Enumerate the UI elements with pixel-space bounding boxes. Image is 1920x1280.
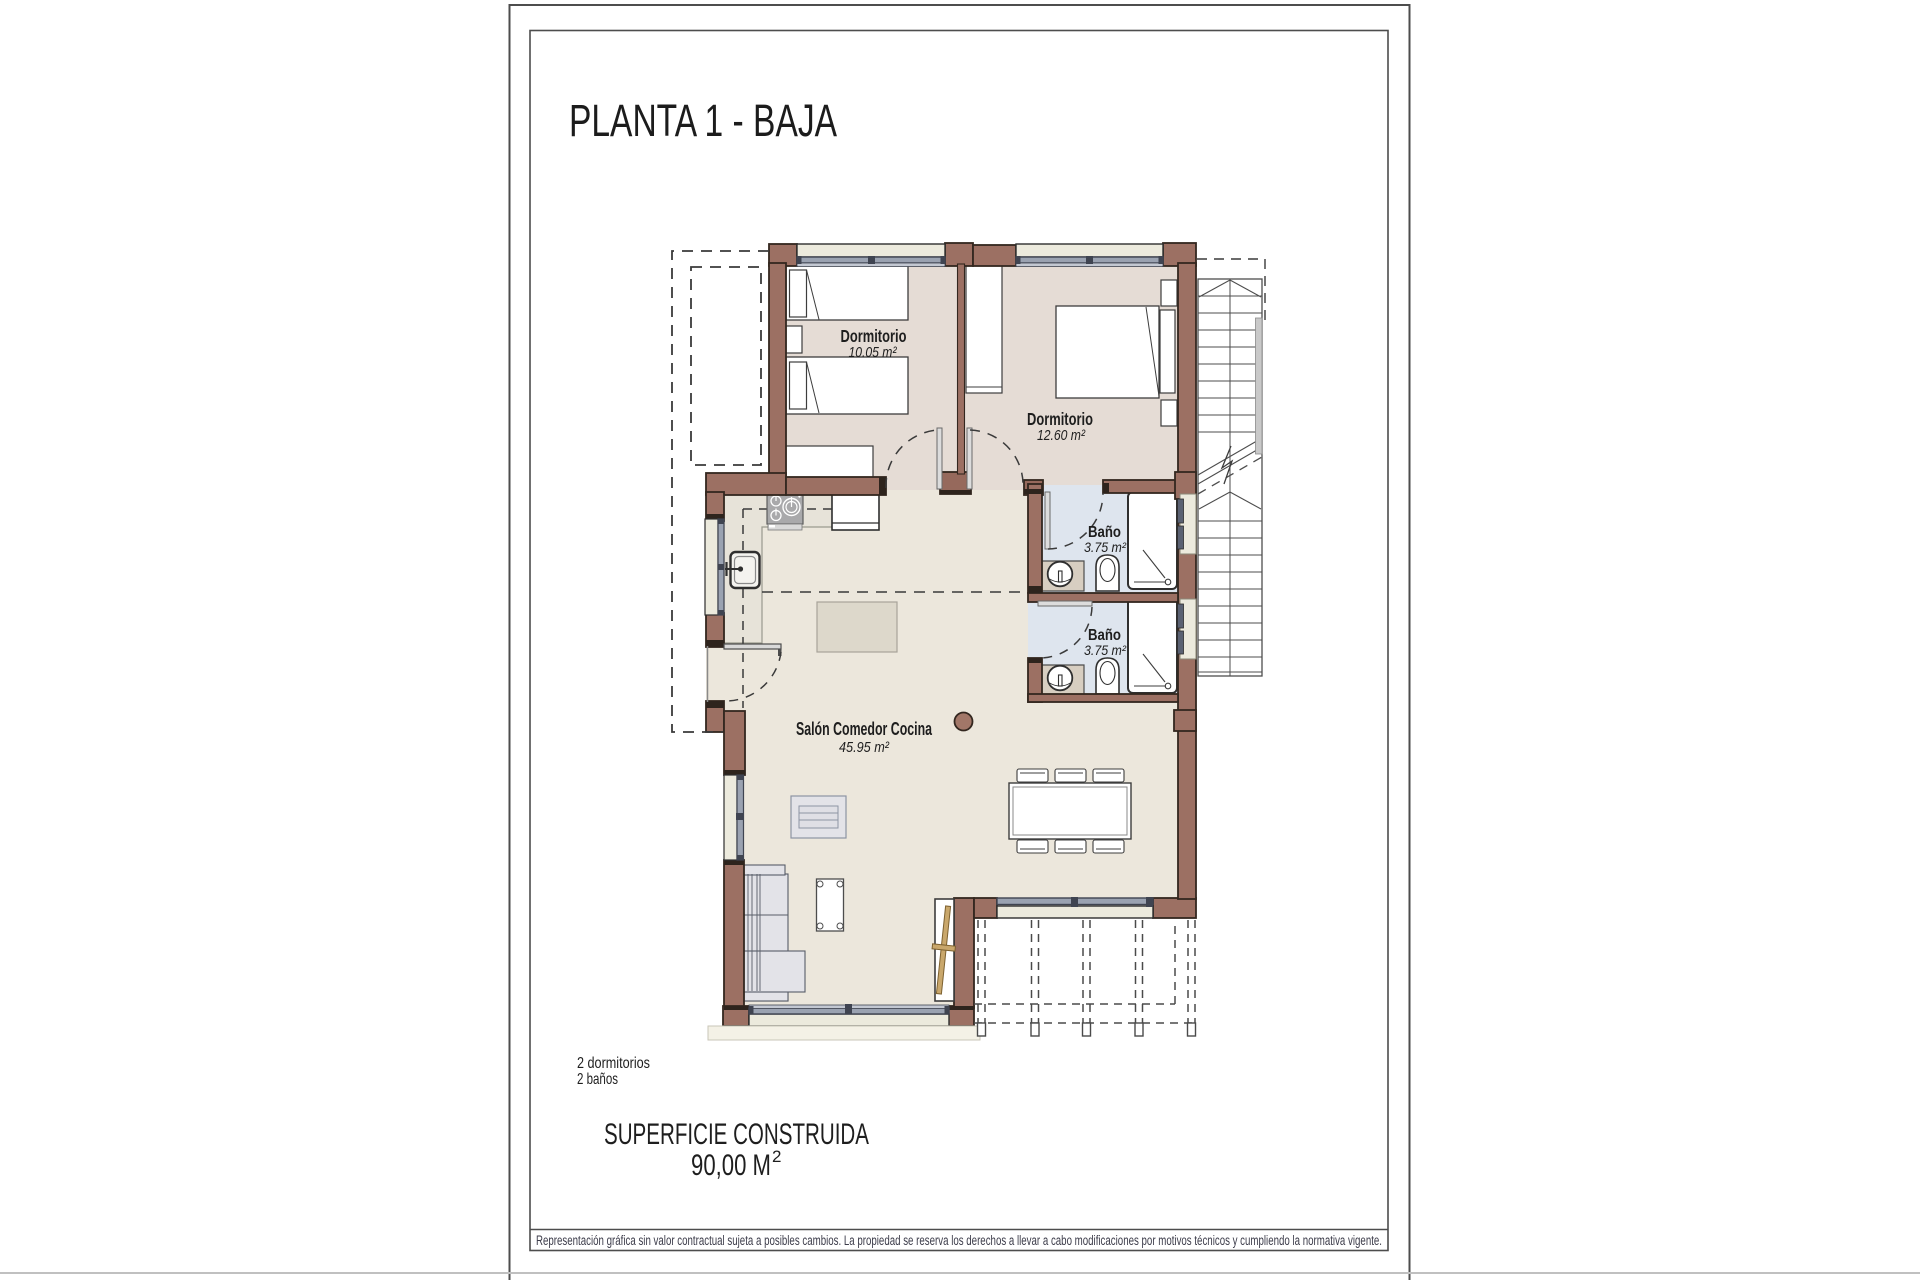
svg-text:2: 2 [772,1147,781,1166]
svg-text:PLANTA 1 - BAJA: PLANTA 1 - BAJA [569,95,837,146]
svg-text:2 dormitorios: 2 dormitorios [577,1055,650,1072]
svg-text:Salón Comedor Cocina: Salón Comedor Cocina [796,719,933,739]
svg-text:12.60 m²: 12.60 m² [1037,427,1086,444]
svg-text:10.05 m²: 10.05 m² [849,344,898,361]
svg-text:2 baños: 2 baños [577,1071,618,1088]
svg-text:Dormitorio: Dormitorio [1027,409,1093,429]
svg-text:SUPERFICIE CONSTRUIDA: SUPERFICIE CONSTRUIDA [604,1118,869,1151]
svg-text:3.75 m²: 3.75 m² [1084,642,1127,658]
svg-text:Representación gráfica sin val: Representación gráfica sin valor contrac… [536,1233,1382,1248]
svg-text:3.75 m²: 3.75 m² [1084,539,1127,555]
svg-text:45.95 m²: 45.95 m² [839,739,890,756]
svg-text:Dormitorio: Dormitorio [841,326,907,346]
svg-text:90,00 M: 90,00 M [691,1149,771,1182]
